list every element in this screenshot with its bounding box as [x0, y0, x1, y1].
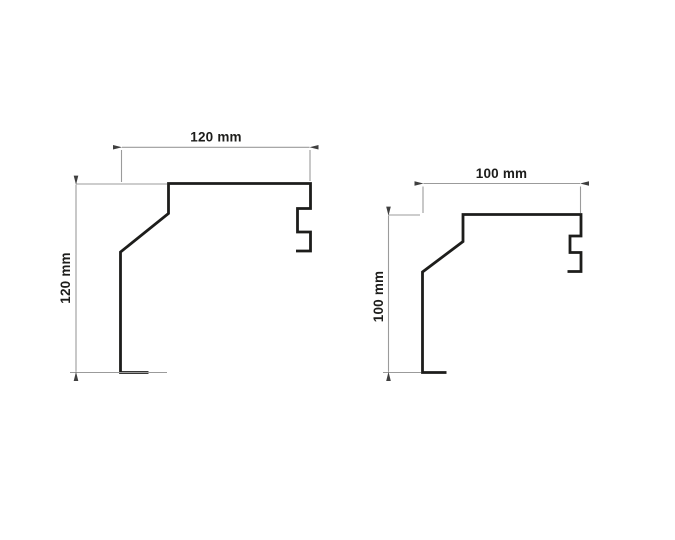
right-width-extension-lines: [423, 187, 581, 214]
left-width-extension-lines: [122, 150, 311, 182]
left-width-label: 120 mm: [190, 130, 241, 145]
right-width-dimension: 100 mm: [423, 166, 581, 213]
left-width-dimension: 120 mm: [122, 130, 311, 183]
right-height-dimension: 100 mm: [371, 215, 421, 373]
technical-drawing-canvas: 120 mm 120 mm 100 mm 100 mm: [0, 0, 675, 540]
left-height-dimension: 120 mm: [58, 184, 167, 373]
left-profile: 120 mm 120 mm: [58, 130, 311, 373]
right-height-label: 100 mm: [371, 271, 386, 322]
right-profile-outline: [423, 215, 582, 373]
right-profile: 100 mm 100 mm: [371, 166, 581, 373]
left-height-label: 120 mm: [58, 252, 73, 303]
profile-diagram: 120 mm 120 mm 100 mm 100 mm: [0, 0, 675, 540]
left-profile-outline: [121, 184, 311, 373]
right-width-label: 100 mm: [476, 166, 527, 181]
left-height-extension-lines: [70, 184, 167, 373]
